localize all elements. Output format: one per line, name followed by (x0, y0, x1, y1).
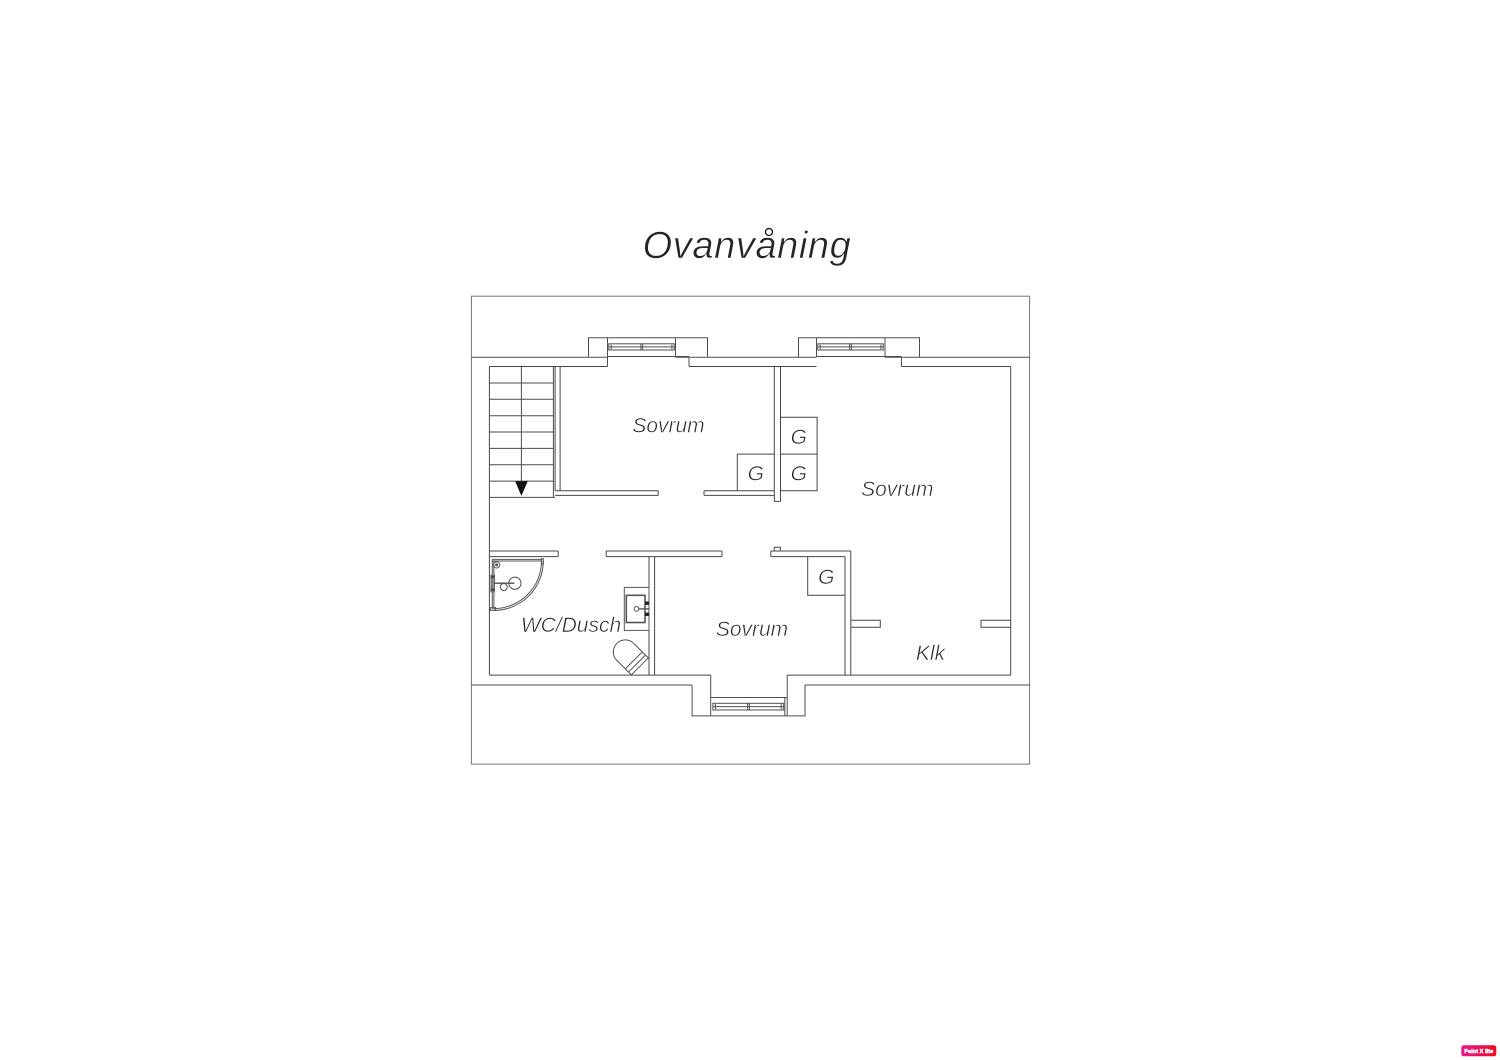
svg-text:Ovanvåning: Ovanvåning (643, 225, 852, 267)
svg-text:G: G (791, 463, 807, 486)
svg-text:Sovrum: Sovrum (716, 618, 788, 641)
svg-text:WC/Dusch: WC/Dusch (521, 614, 621, 637)
svg-text:G: G (791, 426, 807, 449)
svg-text:Klk: Klk (916, 642, 947, 665)
svg-text:Sovrum: Sovrum (861, 478, 933, 501)
svg-text:Sovrum: Sovrum (632, 414, 704, 437)
svg-text:G: G (748, 463, 764, 486)
svg-text:G: G (818, 566, 834, 589)
svg-text:Paint X lite: Paint X lite (1464, 1049, 1493, 1055)
